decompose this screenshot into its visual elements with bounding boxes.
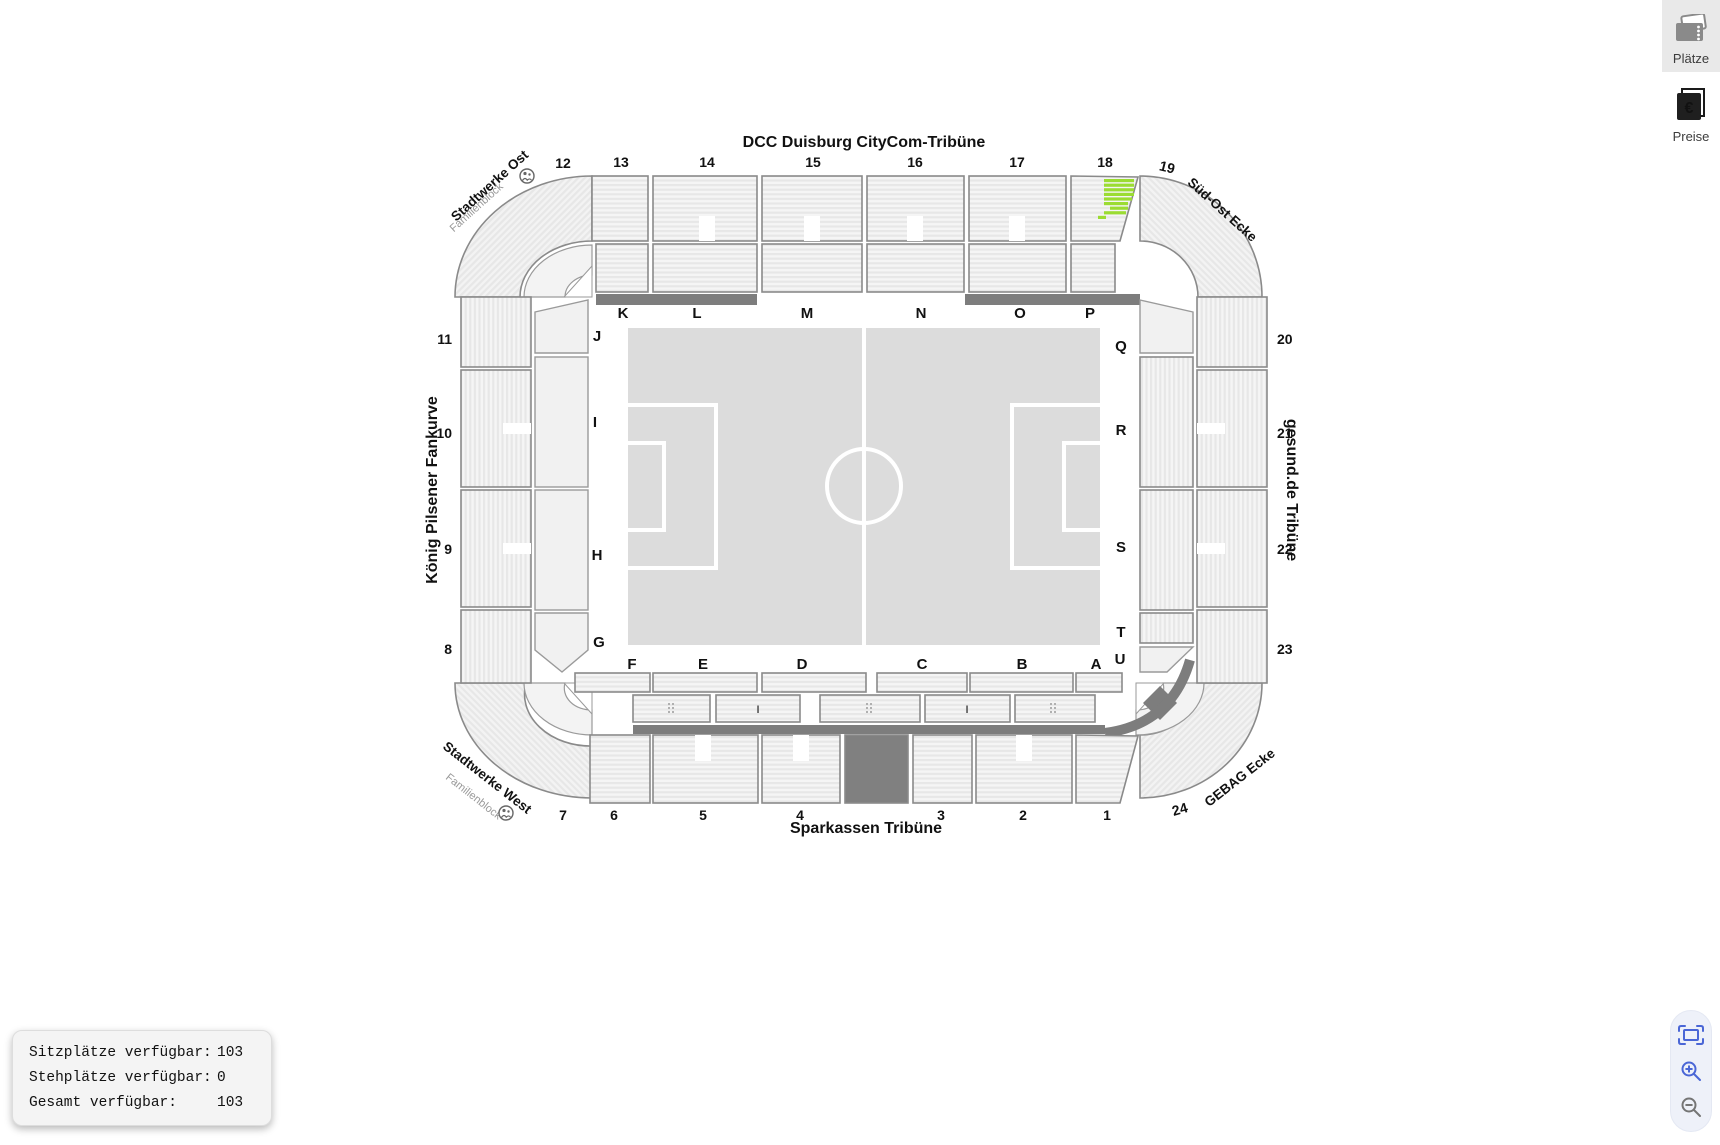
block-number-7: 7 <box>559 807 567 823</box>
seatmap-page: I I 12 13 14 15 16 17 18 19 11 10 9 8 20… <box>0 0 1720 1145</box>
availability-row-standing: Stehplätze verfügbar:0 <box>29 1070 255 1086</box>
zoom-out-button[interactable] <box>1678 1094 1704 1120</box>
block-south-mid-1[interactable] <box>633 695 710 722</box>
availability-label: Gesamt verfügbar: <box>29 1095 217 1111</box>
block-number-2: 2 <box>1019 807 1027 823</box>
availability-info-box: Sitzplätze verfügbar:103 Stehplätze verf… <box>12 1030 272 1126</box>
block-H[interactable] <box>535 490 588 610</box>
stand-label-west: König Pilsener Fankurve <box>424 396 441 584</box>
stadium-map: I I 12 13 14 15 16 17 18 19 11 10 9 8 20… <box>0 0 1720 1145</box>
block-letter-T: T <box>1116 624 1125 641</box>
block-6[interactable] <box>590 735 650 803</box>
svg-text:€: € <box>1685 100 1694 117</box>
aisle <box>1197 423 1225 434</box>
block-8[interactable] <box>461 610 531 683</box>
availability-value: 0 <box>217 1070 255 1086</box>
plaetze-button[interactable]: Plätze <box>1662 0 1720 72</box>
block-number-13: 13 <box>613 154 629 170</box>
walkway-south <box>633 725 1105 734</box>
block-letter-L: L <box>692 305 701 322</box>
block-letter-K: K <box>618 305 629 322</box>
block-3[interactable] <box>913 735 972 803</box>
block-letter-R: R <box>1116 422 1127 439</box>
block-letter-J: J <box>593 328 601 345</box>
block-letter-Q: Q <box>1115 338 1127 355</box>
block-number-14: 14 <box>699 154 715 170</box>
walkway-north-right <box>965 294 1140 305</box>
block-T[interactable] <box>1140 613 1193 643</box>
block-J[interactable] <box>535 300 588 353</box>
block-letter-I: I <box>593 414 597 431</box>
aisle <box>1009 216 1025 241</box>
block-letter-B: B <box>1017 656 1028 673</box>
block-letter-F: F <box>627 656 636 673</box>
block-north-lower-6[interactable] <box>1071 244 1115 292</box>
preise-button[interactable]: € Preise <box>1662 76 1720 148</box>
block-1[interactable] <box>1076 735 1138 803</box>
block-north-lower-4[interactable] <box>867 244 964 292</box>
block-number-5: 5 <box>699 807 707 823</box>
block-23[interactable] <box>1197 610 1267 683</box>
block-number-20: 20 <box>1277 331 1293 347</box>
block-number-19: 19 <box>1158 157 1177 176</box>
block-letter-U: U <box>1115 651 1126 668</box>
block-letter-P: P <box>1085 305 1095 322</box>
availability-value: 103 <box>217 1045 255 1061</box>
aisle <box>503 543 531 554</box>
plaetze-label: Plätze <box>1673 51 1709 66</box>
block-number-17: 17 <box>1009 154 1025 170</box>
block-letter-H: H <box>592 547 603 564</box>
block-number-8: 8 <box>444 641 452 657</box>
aisle <box>907 216 923 241</box>
family-icon <box>499 806 513 820</box>
aisle <box>1016 735 1032 761</box>
block-letter-N: N <box>916 305 927 322</box>
block-D-row[interactable] <box>762 673 866 692</box>
availability-value: 103 <box>217 1095 255 1111</box>
block-A-row[interactable] <box>1076 673 1122 692</box>
block-G[interactable] <box>535 613 588 672</box>
block-number-9: 9 <box>444 541 452 557</box>
walkway-north-left <box>596 294 757 305</box>
block-number-11: 11 <box>437 331 452 347</box>
prices-icon: € <box>1676 88 1706 127</box>
aisle <box>793 735 809 761</box>
south-mid-mark: I <box>756 704 759 716</box>
block-B-row[interactable] <box>970 673 1073 692</box>
block-S[interactable] <box>1140 490 1193 610</box>
block-I[interactable] <box>535 357 588 487</box>
block-letter-S: S <box>1116 539 1126 556</box>
pitch <box>628 328 1100 645</box>
block-north-lower-1[interactable] <box>596 244 648 292</box>
family-icon <box>520 169 534 183</box>
aisle <box>695 735 711 761</box>
aisle <box>1197 543 1225 554</box>
block-letter-A: A <box>1091 656 1102 673</box>
block-F-row[interactable] <box>575 673 650 692</box>
block-20[interactable] <box>1197 297 1267 367</box>
block-number-23: 23 <box>1277 641 1293 657</box>
south-mid-mark: I <box>965 704 968 716</box>
block-E-row[interactable] <box>653 673 757 692</box>
block-number-18: 18 <box>1097 154 1113 170</box>
map-zoom-controls <box>1670 1010 1712 1132</box>
block-north-lower-2[interactable] <box>653 244 757 292</box>
block-closed[interactable] <box>845 735 908 803</box>
block-letter-C: C <box>917 656 928 673</box>
block-letter-G: G <box>593 634 605 651</box>
stand-label-north: DCC Duisburg CityCom-Tribüne <box>743 134 986 151</box>
block-number-24: 24 <box>1170 799 1190 819</box>
block-letter-D: D <box>797 656 808 673</box>
aisle <box>804 216 820 241</box>
block-number-16: 16 <box>907 154 923 170</box>
block-C-row[interactable] <box>877 673 967 692</box>
block-13[interactable] <box>592 176 648 241</box>
block-north-lower-3[interactable] <box>762 244 862 292</box>
zoom-in-button[interactable] <box>1678 1058 1704 1084</box>
block-letter-M: M <box>801 305 814 322</box>
aisle <box>503 423 531 434</box>
availability-row-seats: Sitzplätze verfügbar:103 <box>29 1045 255 1061</box>
seats-icon <box>1673 14 1709 49</box>
stand-label-east: gesund.de Tribüne <box>1283 419 1300 561</box>
block-north-lower-5[interactable] <box>969 244 1066 292</box>
availability-label: Sitzplätze verfügbar: <box>29 1045 217 1061</box>
stand-label-south: Sparkassen Tribüne <box>790 820 942 837</box>
availability-label: Stehplätze verfügbar: <box>29 1070 217 1086</box>
availability-row-total: Gesamt verfügbar:103 <box>29 1095 255 1111</box>
block-number-1: 1 <box>1103 807 1111 823</box>
block-number-12: 12 <box>555 155 571 171</box>
fit-to-screen-button[interactable] <box>1678 1022 1704 1048</box>
aisle <box>699 216 715 241</box>
block-number-6: 6 <box>610 807 618 823</box>
block-letter-E: E <box>698 656 708 673</box>
block-R[interactable] <box>1140 357 1193 487</box>
block-letter-O: O <box>1014 305 1026 322</box>
preise-label: Preise <box>1673 129 1710 144</box>
block-number-15: 15 <box>805 154 821 170</box>
block-11[interactable] <box>461 297 531 367</box>
block-7[interactable] <box>455 683 592 798</box>
block-Q[interactable] <box>1140 300 1193 353</box>
